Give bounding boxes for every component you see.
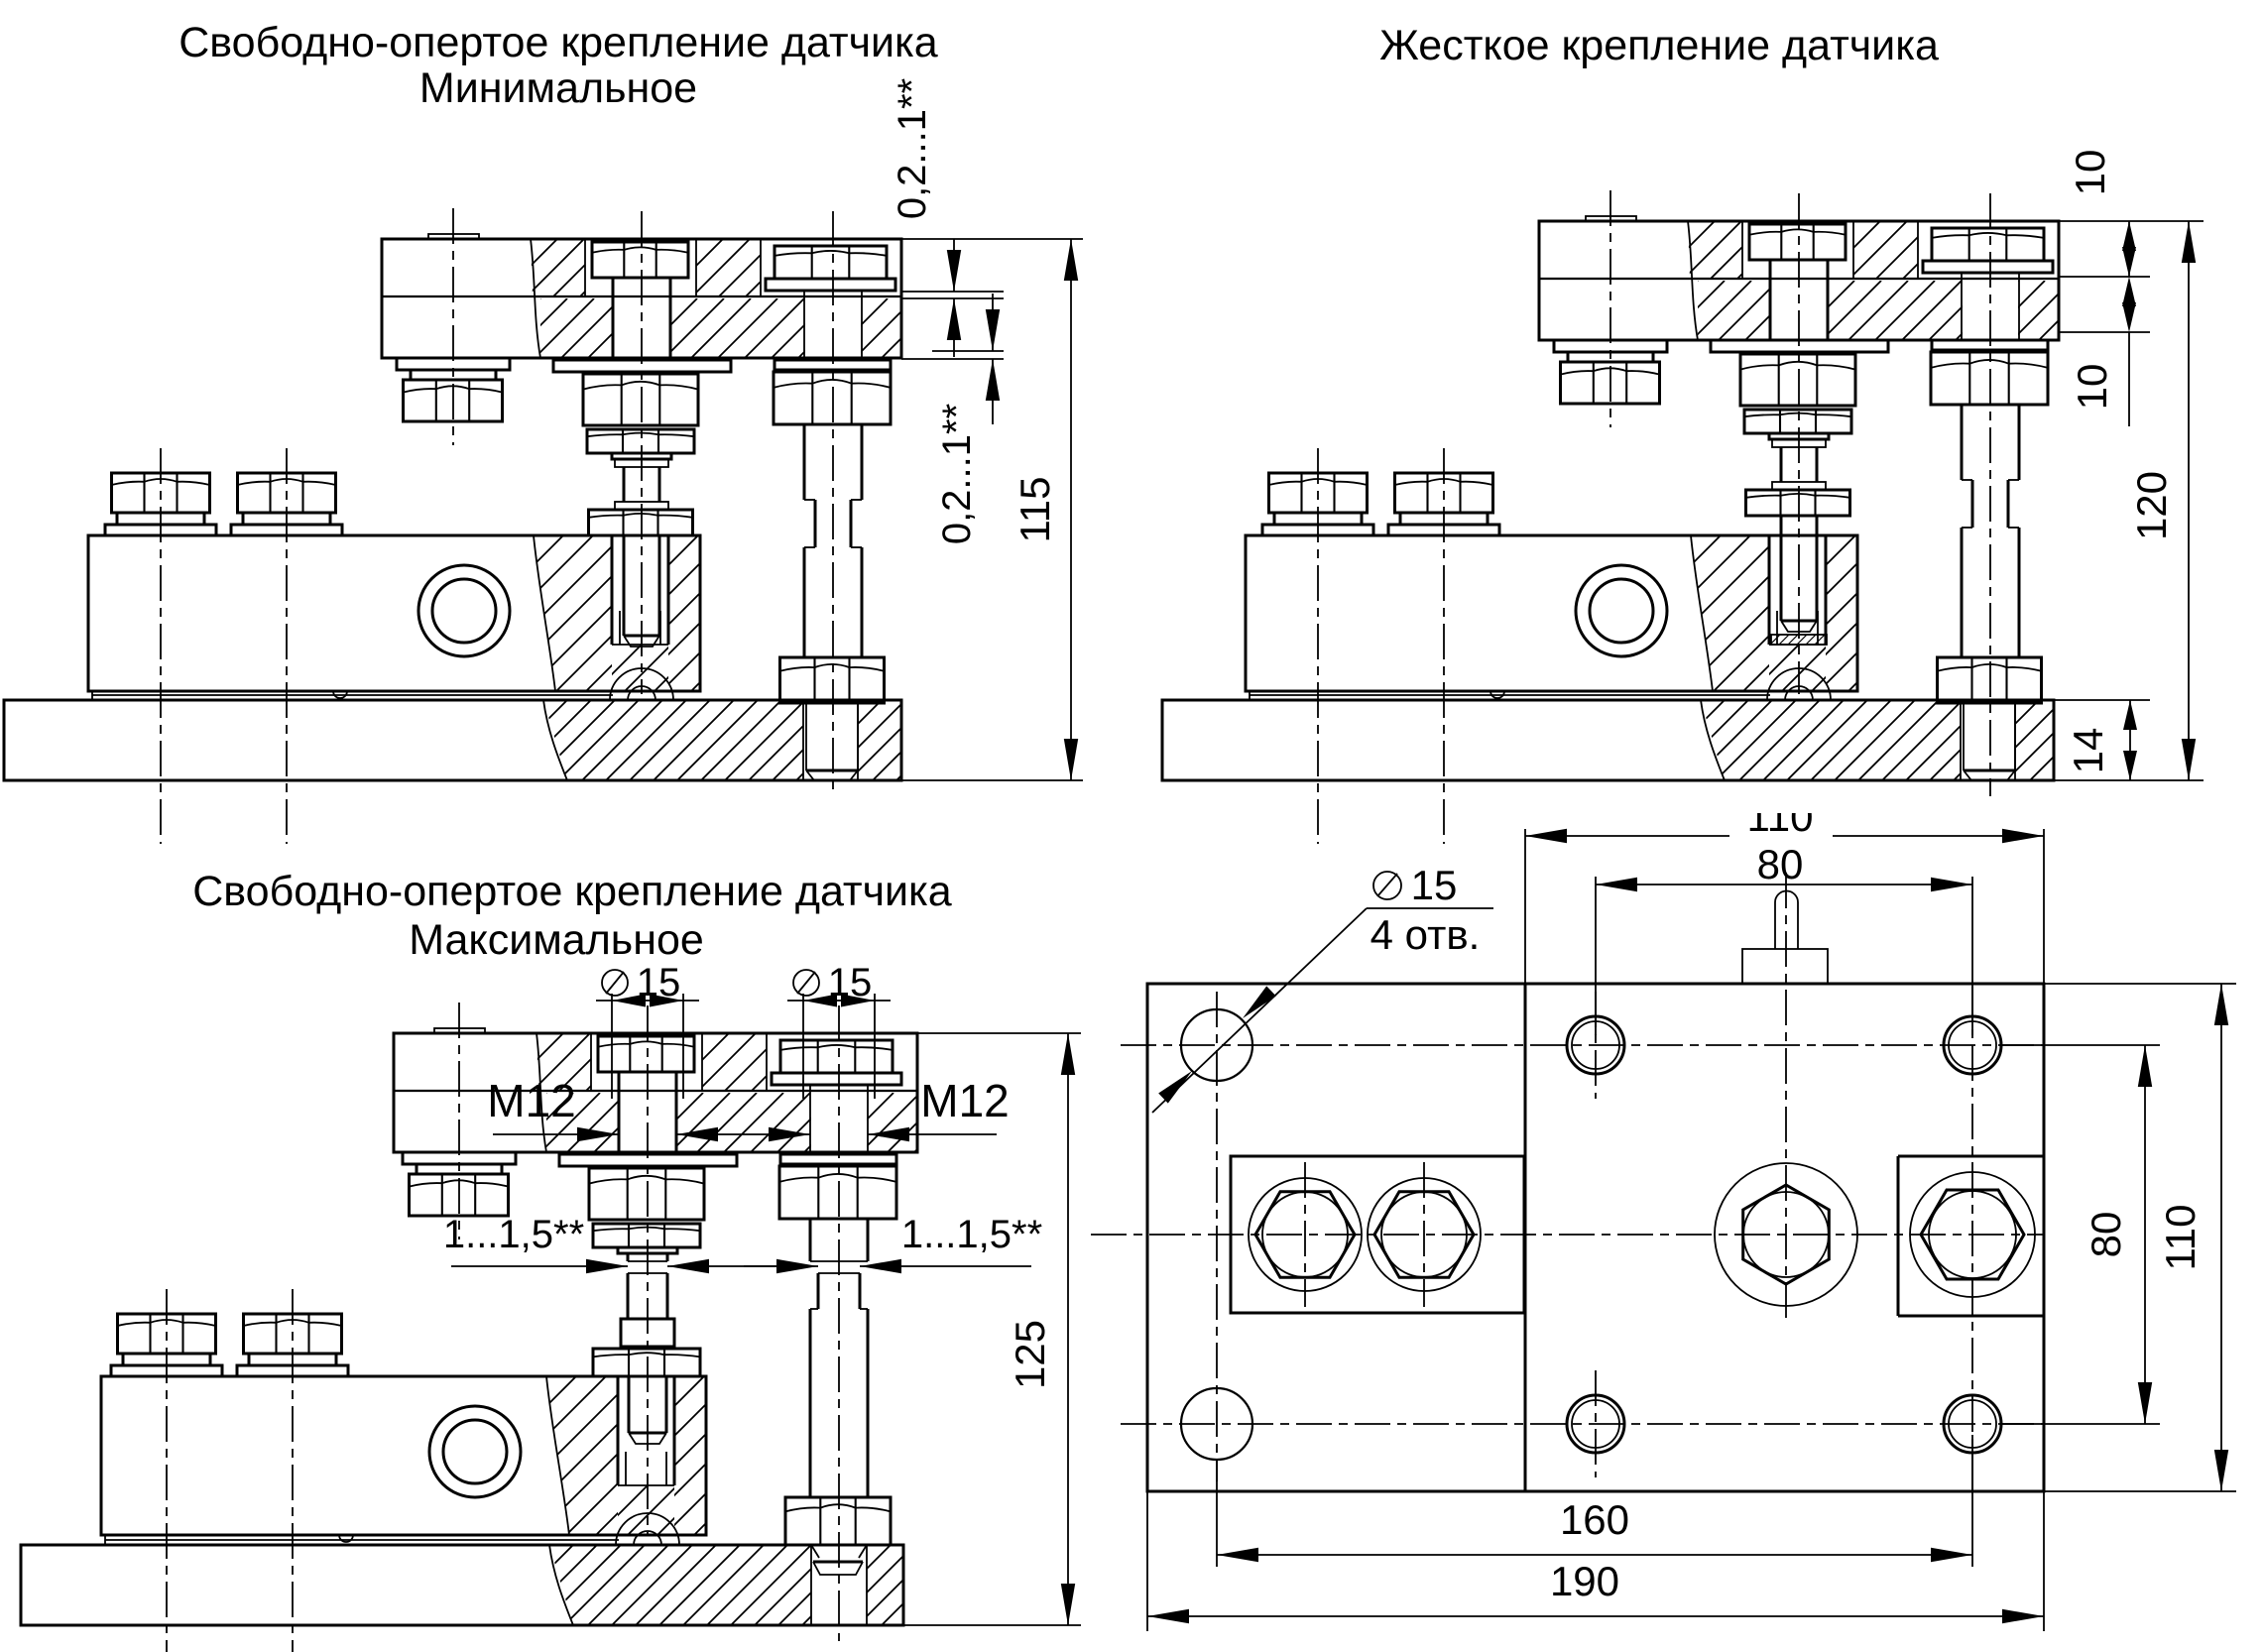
svg-text:80: 80 [2083,1212,2129,1258]
svg-text:Жесткое крепление датчика: Жесткое крепление датчика [1379,22,1939,69]
svg-text:Свободно-опертое крепление дат: Свободно-опертое крепление датчика [179,19,938,66]
svg-text:125: 125 [1007,1320,1053,1389]
svg-text:10: 10 [2067,150,2113,196]
svg-text:14: 14 [2065,728,2111,774]
svg-text:160: 160 [1560,1496,1629,1543]
svg-text:4 отв.: 4 отв. [1370,911,1481,958]
svg-text:80: 80 [1757,841,1804,887]
svg-text:15: 15 [828,961,873,1004]
svg-text:0,2...1**: 0,2...1** [891,78,934,219]
svg-text:115: 115 [1012,477,1058,543]
svg-text:15: 15 [1411,862,1458,908]
svg-text:Минимальное: Минимальное [419,64,697,112]
svg-text:120: 120 [2128,471,2175,540]
svg-text:M12: M12 [487,1075,575,1126]
svg-text:190: 190 [1550,1558,1619,1604]
svg-text:M12: M12 [920,1075,1009,1126]
svg-text:15: 15 [637,961,681,1004]
svg-text:0,2...1**: 0,2...1** [935,404,979,544]
svg-text:1...1,5**: 1...1,5** [443,1213,584,1256]
svg-text:Максимальное: Максимальное [409,916,704,964]
svg-text:1...1,5**: 1...1,5** [901,1213,1042,1256]
svg-text:10: 10 [2069,364,2115,411]
svg-text:110: 110 [2157,1205,2204,1271]
svg-text:Свободно-опертое крепление дат: Свободно-опертое крепление датчика [192,868,952,915]
